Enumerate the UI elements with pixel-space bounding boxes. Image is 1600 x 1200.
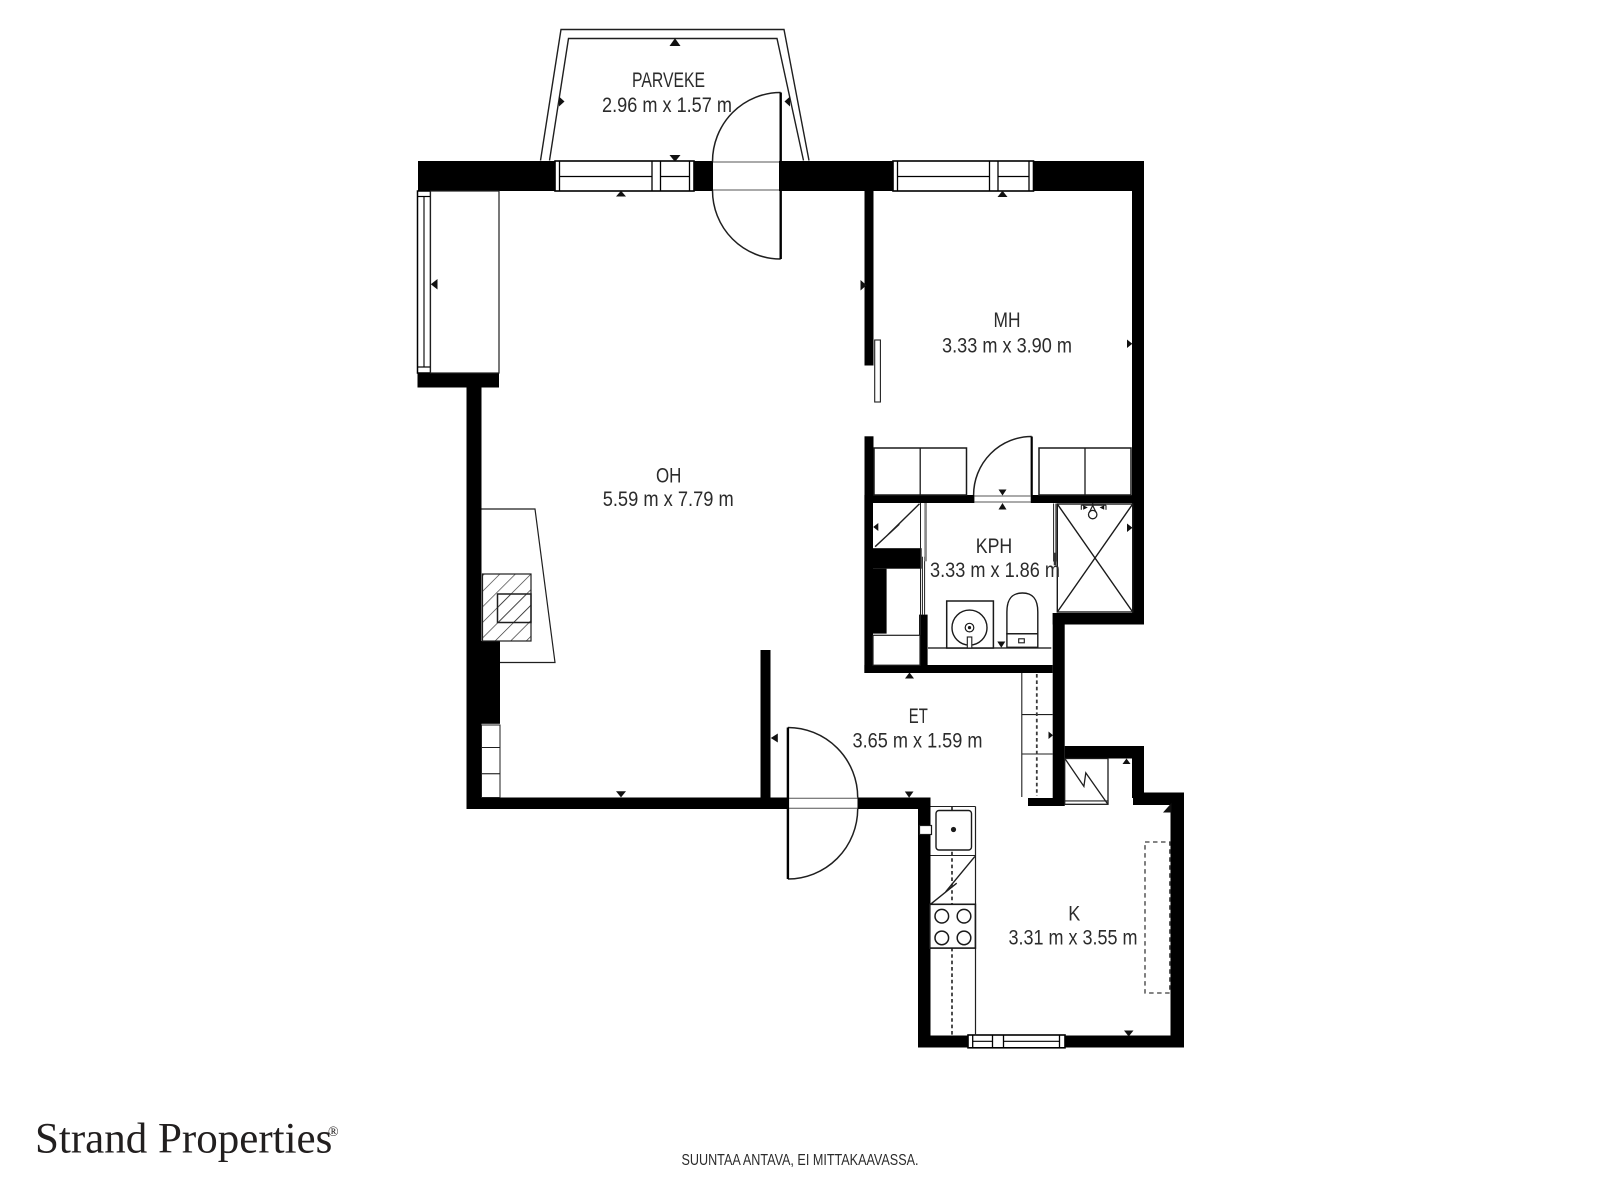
svg-text:2.96 m x 1.57 m: 2.96 m x 1.57 m — [602, 94, 732, 117]
svg-text:3.33 m x 3.90 m: 3.33 m x 3.90 m — [942, 335, 1072, 358]
svg-text:ET: ET — [909, 705, 928, 728]
svg-text:®: ® — [328, 1125, 339, 1140]
svg-text:OH: OH — [656, 465, 681, 488]
svg-text:MH: MH — [994, 309, 1021, 332]
svg-text:3.31 m x 3.55 m: 3.31 m x 3.55 m — [1009, 927, 1138, 950]
svg-text:3.33 m x 1.86 m: 3.33 m x 1.86 m — [930, 559, 1060, 582]
svg-text:K: K — [1068, 903, 1080, 926]
svg-text:Strand Properties: Strand Properties — [35, 1115, 332, 1162]
svg-text:SUUNTAA ANTAVA, EI MITTAKAAVAS: SUUNTAA ANTAVA, EI MITTAKAAVASSA. — [682, 1152, 919, 1169]
svg-text:5.59 m x 7.79 m: 5.59 m x 7.79 m — [603, 488, 734, 511]
svg-text:3.65 m x 1.59 m: 3.65 m x 1.59 m — [853, 729, 983, 752]
svg-text:PARVEKE: PARVEKE — [632, 69, 705, 92]
svg-text:KPH: KPH — [976, 535, 1013, 558]
